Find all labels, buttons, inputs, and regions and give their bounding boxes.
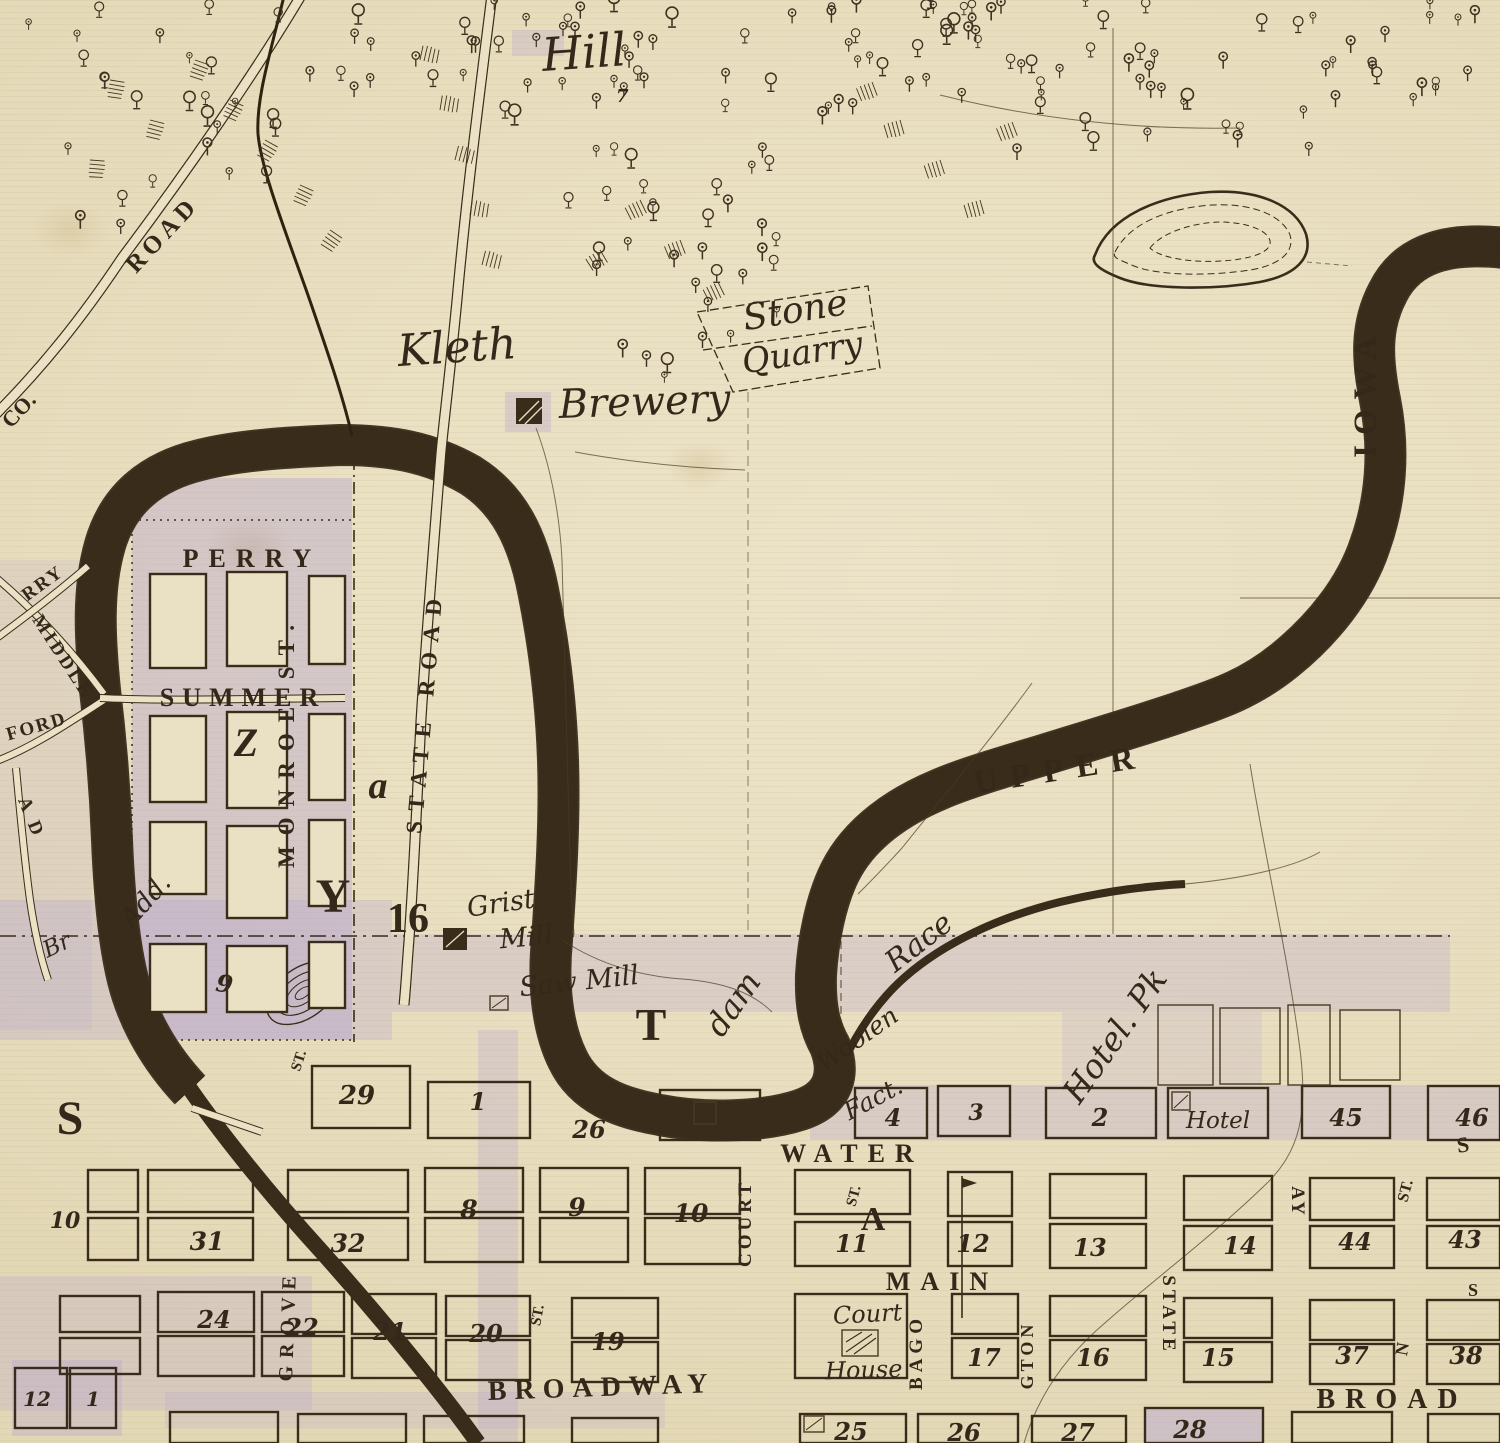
block-number: 43 — [1448, 1225, 1481, 1254]
perry-street-label: PERRY — [183, 544, 322, 573]
kleth-label: Kleth — [395, 318, 518, 377]
n-street-fragment: N — [1391, 1341, 1413, 1357]
iowa-river-label: IOWA — [1348, 326, 1384, 458]
block-number: 21 — [372, 1317, 406, 1346]
section-letter-t: T — [636, 999, 667, 1050]
water-street-label: WATER — [780, 1139, 923, 1168]
block-number: 38 — [1449, 1341, 1483, 1370]
grist-mill-building — [443, 928, 467, 950]
brewery-building — [516, 398, 542, 424]
section-letter-z: Z — [233, 720, 258, 765]
block-number: 44 — [1338, 1227, 1371, 1256]
grist-mill-label-1: Grist — [465, 883, 537, 923]
hotel-block-label: Hotel — [1185, 1108, 1250, 1134]
block-number: 31 — [190, 1227, 225, 1256]
court-house-label-1: Court — [832, 1298, 903, 1330]
block-number: 28 — [1172, 1415, 1207, 1443]
court-house-building — [842, 1330, 878, 1356]
plat-map: Hill 7 ROAD CO. Kleth Brewery Stone Quar… — [0, 0, 1500, 1443]
grist-mill-label-2: Mill — [497, 920, 554, 956]
court-house-label-2: House — [824, 1355, 903, 1386]
co-road-prefix: CO. — [0, 387, 41, 432]
block-number: 16 — [1076, 1343, 1110, 1372]
block-number: 17 — [967, 1343, 1001, 1372]
broadway-street-label: BROADWAY — [487, 1368, 716, 1407]
perry-addition-blocks — [150, 572, 345, 1012]
st-label-right: ST. — [1395, 1178, 1417, 1204]
section-number-16: 16 — [387, 896, 429, 942]
main-street-label: MAIN — [886, 1267, 998, 1296]
day-street-fragment: AY — [1287, 1186, 1308, 1218]
st-label-mid: ST. — [528, 1303, 547, 1327]
block-number: 4 — [885, 1103, 902, 1132]
block-number: 32 — [331, 1229, 366, 1258]
section-letter-s: S — [57, 1092, 84, 1145]
block25-building — [804, 1416, 824, 1432]
block-number: 1 — [86, 1387, 100, 1411]
block-number: 20 — [468, 1319, 503, 1348]
block-number: 10 — [674, 1199, 709, 1228]
state-street-label: STATE — [1158, 1275, 1179, 1355]
hill-label: Hill — [539, 22, 628, 82]
block-number: 45 — [1329, 1103, 1362, 1132]
block-number: 12 — [23, 1387, 51, 1411]
block-number: 9 — [568, 1193, 585, 1222]
block-number: 26 — [946, 1418, 981, 1443]
block-number: 13 — [1073, 1233, 1106, 1262]
summer-street-label: SUMMER — [160, 683, 326, 712]
brewery-label: Brewery — [557, 376, 733, 428]
block-number: 46 — [1455, 1103, 1489, 1132]
block-number: 25 — [833, 1417, 867, 1443]
section-letter-y: Y — [316, 870, 351, 923]
map-canvas: Hill 7 ROAD CO. Kleth Brewery Stone Quar… — [0, 0, 1500, 1443]
broadway-street-label-east: BROAD — [1316, 1384, 1467, 1415]
block-number: 22 — [284, 1313, 318, 1342]
block-number: 8 — [459, 1195, 477, 1224]
block-number: 1 — [470, 1087, 487, 1116]
block-number: 37 — [1335, 1341, 1369, 1370]
lot-number: 10 — [50, 1208, 81, 1234]
block-number: 19 — [591, 1327, 625, 1356]
block-number: 14 — [1223, 1231, 1256, 1260]
s-street-fragment-2: S — [1468, 1280, 1478, 1300]
block-number: 26 — [571, 1115, 606, 1144]
block-number: 12 — [956, 1229, 989, 1258]
state-road-label: STATE ROAD — [401, 588, 447, 835]
monroe-street-label: MONROE ST. — [274, 614, 299, 868]
winnebago-street-fragment: BAGO — [906, 1314, 927, 1390]
block-number: 29 — [338, 1081, 375, 1111]
river-island — [1094, 192, 1308, 288]
washington-street-fragment: GTON — [1017, 1321, 1037, 1390]
block-number: 24 — [196, 1305, 230, 1334]
section-letter-a-lower: a — [369, 765, 388, 807]
block-number: 3 — [968, 1100, 983, 1126]
block-number: 11 — [835, 1229, 868, 1258]
block-number: 2 — [1091, 1103, 1109, 1132]
block-number: 27 — [1060, 1418, 1095, 1443]
court-street-label: COURT — [735, 1179, 756, 1267]
hill-number: 7 — [616, 86, 629, 107]
st-label-grove-north: ST. — [288, 1048, 310, 1073]
block-number: 15 — [1201, 1343, 1234, 1372]
